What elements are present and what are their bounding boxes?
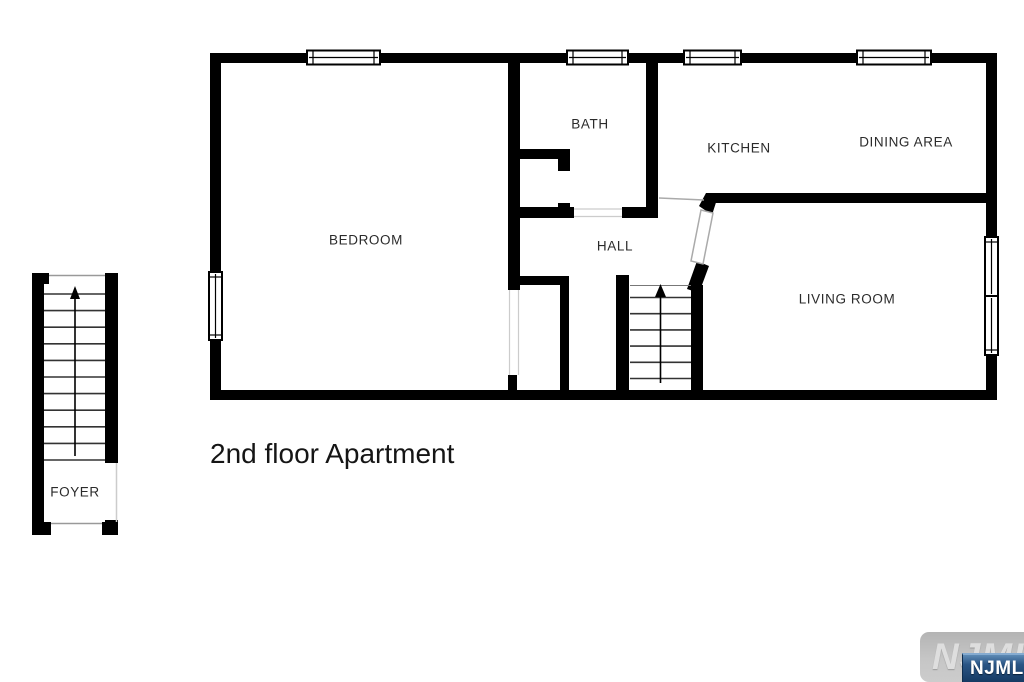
room-label-bath: BATH: [571, 117, 608, 132]
window-icon: [567, 51, 628, 65]
hall-staircase: [630, 284, 691, 383]
room-label-bedroom: BEDROOM: [329, 233, 403, 248]
njmls-logo-text: NJMLS: [963, 658, 1024, 680]
window-icon: [857, 51, 931, 65]
window-icon: [985, 296, 998, 355]
window-icon: [985, 237, 998, 296]
interior-walls: [508, 53, 997, 394]
stairs-up-arrow-icon: [655, 284, 666, 383]
njmls-logo-badge: NJMLS: [962, 653, 1024, 682]
room-label-kitchen: KITCHEN: [707, 141, 770, 156]
outer-walls: [210, 53, 997, 400]
floor-plan-drawing: [0, 0, 1024, 682]
room-label-foyer: FOYER: [50, 485, 100, 500]
window-icon: [307, 51, 380, 65]
window-icon: [209, 272, 222, 340]
room-label-dining-area: DINING AREA: [859, 135, 953, 150]
floor-plan-canvas: BEDROOM BATH KITCHEN DINING AREA HALL LI…: [0, 0, 1024, 682]
room-label-living-room: LIVING ROOM: [799, 292, 896, 307]
room-label-hall: HALL: [597, 239, 633, 254]
door-openings: [510, 198, 714, 375]
stairs-up-arrow-icon: [70, 286, 80, 456]
window-icon: [684, 51, 741, 65]
plan-title: 2nd floor Apartment: [210, 438, 454, 470]
